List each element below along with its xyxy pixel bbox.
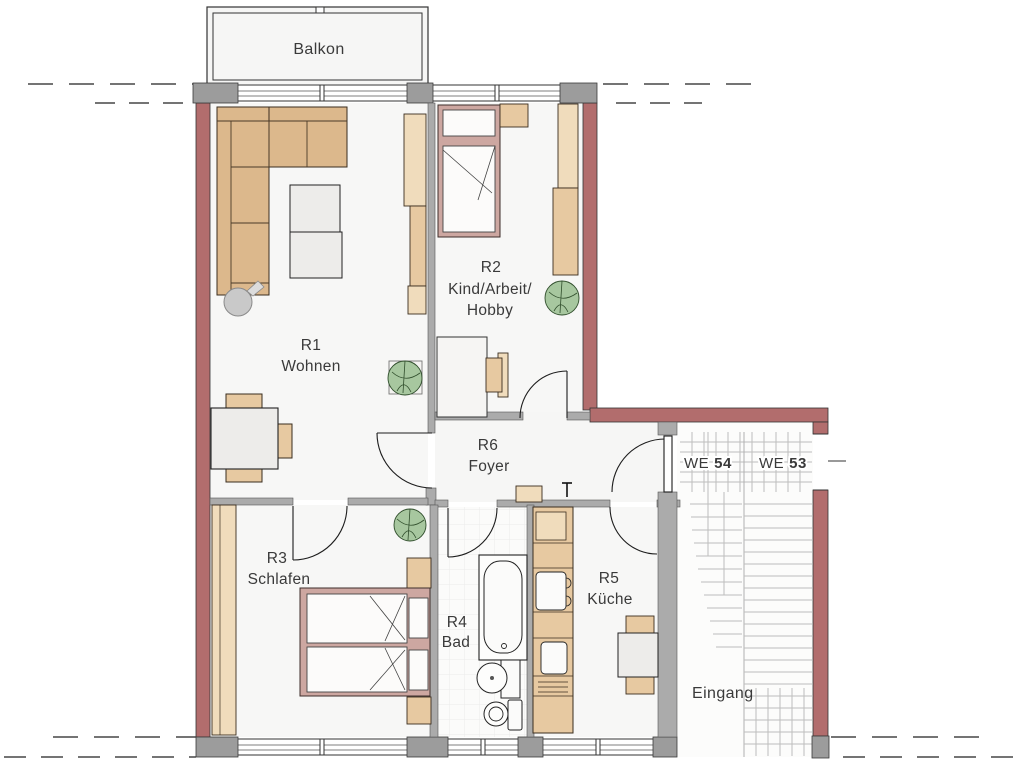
pier-bottom-mid2 (518, 737, 543, 757)
counter-cabinet-top (536, 512, 566, 540)
balcony-rail-joint (316, 7, 324, 13)
kitchen-sink-unit (536, 572, 566, 610)
sofa-left-section (217, 107, 269, 295)
coffee-table-1 (290, 185, 340, 232)
mattress-2 (307, 647, 407, 692)
we54-prefix: WE (684, 455, 709, 472)
wardrobe-r1-seg1 (404, 114, 426, 206)
room-label-r6-id: R6 (478, 437, 498, 454)
we54-number: 54 (714, 455, 732, 472)
kitchen-table (618, 633, 658, 677)
dining-table (211, 408, 278, 469)
room-label-r1-name: Wohnen (281, 358, 340, 375)
window-mullion-bedroom (320, 739, 324, 755)
wardrobe-r2-seg2 (553, 188, 578, 275)
pillow-2 (409, 650, 428, 690)
wall-entry-pier-top (658, 422, 677, 435)
room-label-r3-id: R3 (267, 550, 287, 567)
we53-prefix: WE (759, 455, 784, 472)
exterior-wall-west (196, 103, 210, 737)
room-label-r2-name2: Hobby (467, 302, 513, 319)
pillow-1 (409, 598, 428, 638)
balcony-label: Balkon (293, 41, 344, 58)
nightstand-north (407, 558, 431, 588)
window-mullion-bath (481, 739, 485, 755)
pier-stairwell-corner (812, 736, 829, 758)
bed-kids (438, 105, 500, 237)
wardrobe-r1-seg2 (410, 206, 426, 286)
room-label-r4-id: R4 (447, 614, 467, 631)
pier-bottom-mid3 (653, 737, 677, 757)
kitchen-chair-north (626, 616, 654, 633)
dining-chair-east (277, 424, 292, 458)
plant-living (388, 361, 422, 395)
window-mullion-kitchen (596, 739, 600, 755)
double-bed (300, 588, 430, 696)
building-entrance-opening (813, 434, 846, 490)
wall-foyer-south-2 (497, 500, 610, 507)
floor-foyer (435, 412, 665, 502)
room-label-r4-name: Bad (442, 634, 470, 651)
room-label-r2-name1: Kind/Arbeit/ (448, 281, 532, 298)
room-label-r1-id: R1 (301, 337, 321, 354)
kitchen-chair-south (626, 677, 654, 694)
wardrobe-r1-seg3 (408, 286, 426, 314)
pier-top-left (193, 83, 238, 103)
bathtub (479, 555, 527, 660)
nightstand-kids (500, 104, 528, 127)
plant-bedroom (394, 509, 426, 541)
window-mullion-r2 (495, 85, 499, 101)
exterior-wall-stairwell-north (590, 408, 828, 422)
floorplan-canvas: Balkon (0, 0, 1024, 768)
kitchen-counter (533, 507, 573, 733)
pillow-kids (443, 110, 495, 136)
coffee-tables (290, 185, 342, 278)
pier-top-right (560, 83, 597, 103)
room-label-r6-name: Foyer (468, 458, 509, 475)
coffee-table-2 (290, 232, 342, 278)
window-band-top (238, 84, 560, 103)
pier-bottom-left (196, 737, 238, 757)
window-mullion-balcony-door (320, 85, 324, 101)
entrance-label: Eingang (692, 685, 754, 702)
exterior-wall-east-lower (813, 490, 828, 736)
nightstand-south (407, 697, 431, 724)
dining-chair-south (226, 468, 262, 482)
pier-bottom-mid1 (407, 737, 448, 757)
wall-r1-r3-east (348, 498, 428, 505)
dining-chair-north (226, 394, 262, 409)
wall-kitchen-stairwell (658, 492, 677, 737)
unit-label-we54: WE54 (684, 455, 732, 472)
pier-top-mid (407, 83, 433, 103)
unit-label-we53: WE53 (759, 455, 807, 472)
wardrobe-r2-seg1 (558, 104, 578, 188)
floorplan-drawing: Balkon (0, 0, 1024, 768)
mattress-1 (307, 594, 407, 643)
sink-drain (490, 676, 494, 680)
entrance-opening-gap (813, 434, 828, 490)
foyer-shelf (516, 486, 542, 502)
kitchen-stove-unit (541, 642, 567, 674)
desk-chair-seat (486, 358, 502, 392)
room-label-r3-name: Schlafen (248, 571, 311, 588)
balcony: Balkon (207, 7, 428, 86)
room-label-r5-id: R5 (599, 570, 619, 587)
exterior-wall-east-stub (813, 422, 828, 434)
we53-number: 53 (789, 455, 807, 472)
room-label-r2-id: R2 (481, 259, 501, 276)
wardrobe-r3 (212, 505, 236, 735)
room-label-r5-name: Küche (587, 591, 632, 608)
plant-kids (545, 281, 579, 315)
wall-r1-r2 (428, 103, 435, 433)
exterior-wall-east-upper (583, 103, 597, 410)
wall-r1-r3-west (210, 498, 293, 505)
wall-foyer-north-east (567, 412, 590, 420)
